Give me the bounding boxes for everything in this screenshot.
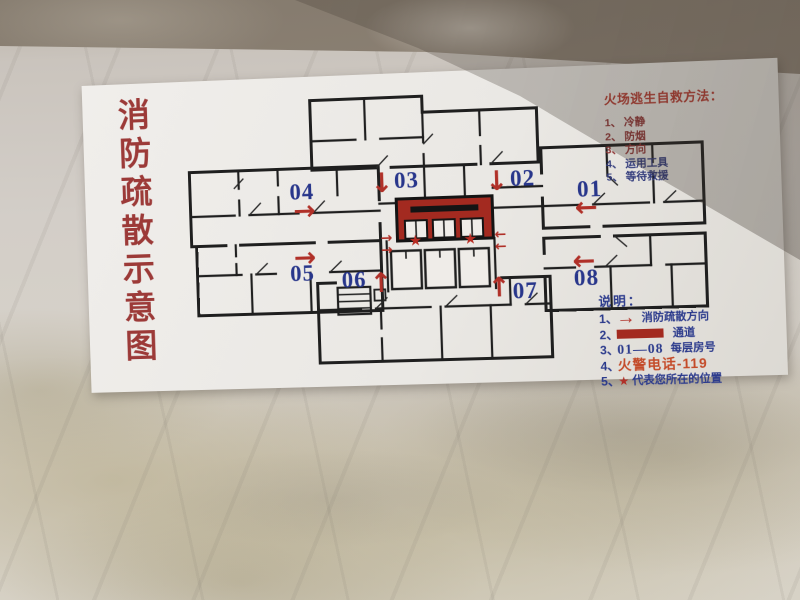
item-number: 3、 xyxy=(605,144,625,158)
item-text: 通道 xyxy=(673,326,696,339)
evacuation-arrow-04-right-icon: → xyxy=(293,195,316,227)
evacuation-arrow-02-down-icon: ↓ xyxy=(485,166,509,198)
legend-item-evac-direction: 1、 → 消防疏散方向 xyxy=(599,308,785,326)
title-char: 图 xyxy=(111,328,172,368)
item-text: 每层房号 xyxy=(670,341,715,355)
item-text: 等待救援 xyxy=(626,169,669,184)
sign-vertical-title: 消 防 疏 散 示 意 图 xyxy=(103,97,172,368)
evacuation-arrow-06-up-icon: ↑ xyxy=(369,268,392,300)
you-are-here-star-icon: ★ xyxy=(463,229,477,247)
self-rescue-items: 1、 冷静 2、 防烟 3、 方向 4、 运用工具 5、 等待救援 xyxy=(604,111,780,186)
legend-star-icon: ★ xyxy=(618,375,629,388)
you-are-here-star-icon: ★ xyxy=(408,231,422,249)
title-char: 示 xyxy=(108,251,169,291)
item-number: 5、 xyxy=(606,171,626,185)
title-char: 消 xyxy=(103,97,164,138)
self-rescue-methods-block: 火场逃生自救方法： 1、 冷静 2、 防烟 3、 方向 4、 运用工具 5、 等… xyxy=(604,82,781,185)
item-text: 方向 xyxy=(625,143,647,157)
room-label-02: 02 xyxy=(510,165,536,192)
evacuation-arrow-07-up-icon: ↑ xyxy=(487,272,511,304)
legend-arrow-icon: → xyxy=(616,313,636,324)
core-arrow-right-icon: → xyxy=(381,242,393,258)
item-number: 4、 xyxy=(606,157,626,171)
title-char: 意 xyxy=(110,289,171,329)
room-label-06: 06 xyxy=(341,267,367,294)
evacuation-arrow-01-left-icon: ← xyxy=(574,192,598,224)
legend-item-room-numbers: 3、 01—08 每层房号 xyxy=(600,339,786,357)
item-number: 2、 xyxy=(605,130,625,144)
item-number: 5、 xyxy=(601,375,619,388)
title-char: 疏 xyxy=(106,173,167,214)
room-label-03: 03 xyxy=(394,167,420,194)
evacuation-arrow-08-left-icon: ← xyxy=(572,245,596,277)
evacuation-arrow-03-down-icon: ↓ xyxy=(370,168,393,200)
item-number: 1、 xyxy=(604,117,624,131)
item-text: 防烟 xyxy=(624,129,646,143)
legend-block: 说明： 1、 → 消防疏散方向 2、 通道 3、 01—08 每层房号 4、 火… xyxy=(598,285,787,388)
room-number-range: 01—08 xyxy=(617,343,664,357)
item-text: 消防疏散方向 xyxy=(641,310,709,325)
item-number: 1、 xyxy=(599,313,617,326)
evacuation-arrow-05-right-icon: → xyxy=(293,242,316,274)
fire-alarm-phone: 火警电话-119 xyxy=(618,357,708,372)
photo-of-fire-evacuation-sign: { "sign": { "title_chars": ["消","防","疏",… xyxy=(0,0,800,600)
legend-corridor-bar-icon xyxy=(617,329,664,339)
fire-evacuation-sign-board: 消 防 疏 散 示 意 图 xyxy=(82,58,788,393)
title-char: 散 xyxy=(107,212,168,252)
title-char: 防 xyxy=(105,135,166,176)
item-text: 代表您所在的位置 xyxy=(632,372,722,387)
core-arrow-left-icon: ← xyxy=(495,238,507,254)
legend-item-fire-phone: 4、 火警电话-119 xyxy=(600,355,786,373)
item-text: 冷静 xyxy=(624,116,646,130)
item-number: 3、 xyxy=(600,344,618,357)
item-number: 2、 xyxy=(599,328,617,341)
elevator-bank xyxy=(391,248,490,289)
item-number: 4、 xyxy=(600,360,618,373)
room-label-07: 07 xyxy=(512,278,538,305)
